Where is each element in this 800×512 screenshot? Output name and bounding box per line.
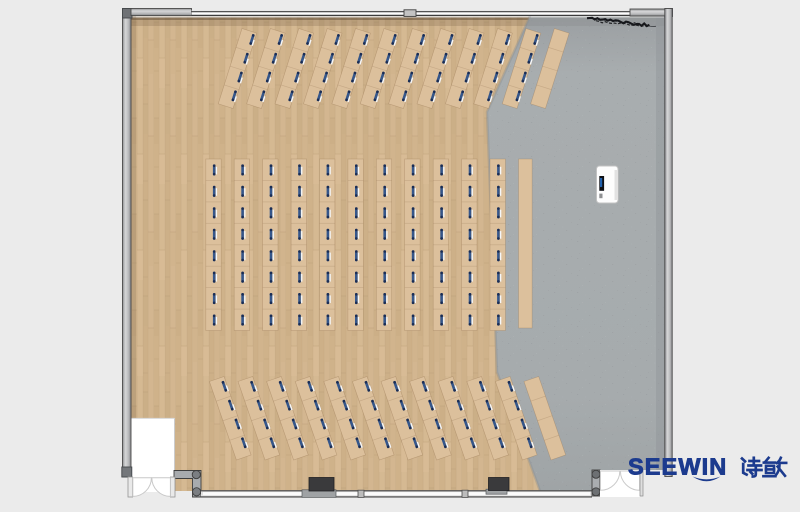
svg-text:SEEWIN: SEEWIN	[628, 454, 727, 480]
